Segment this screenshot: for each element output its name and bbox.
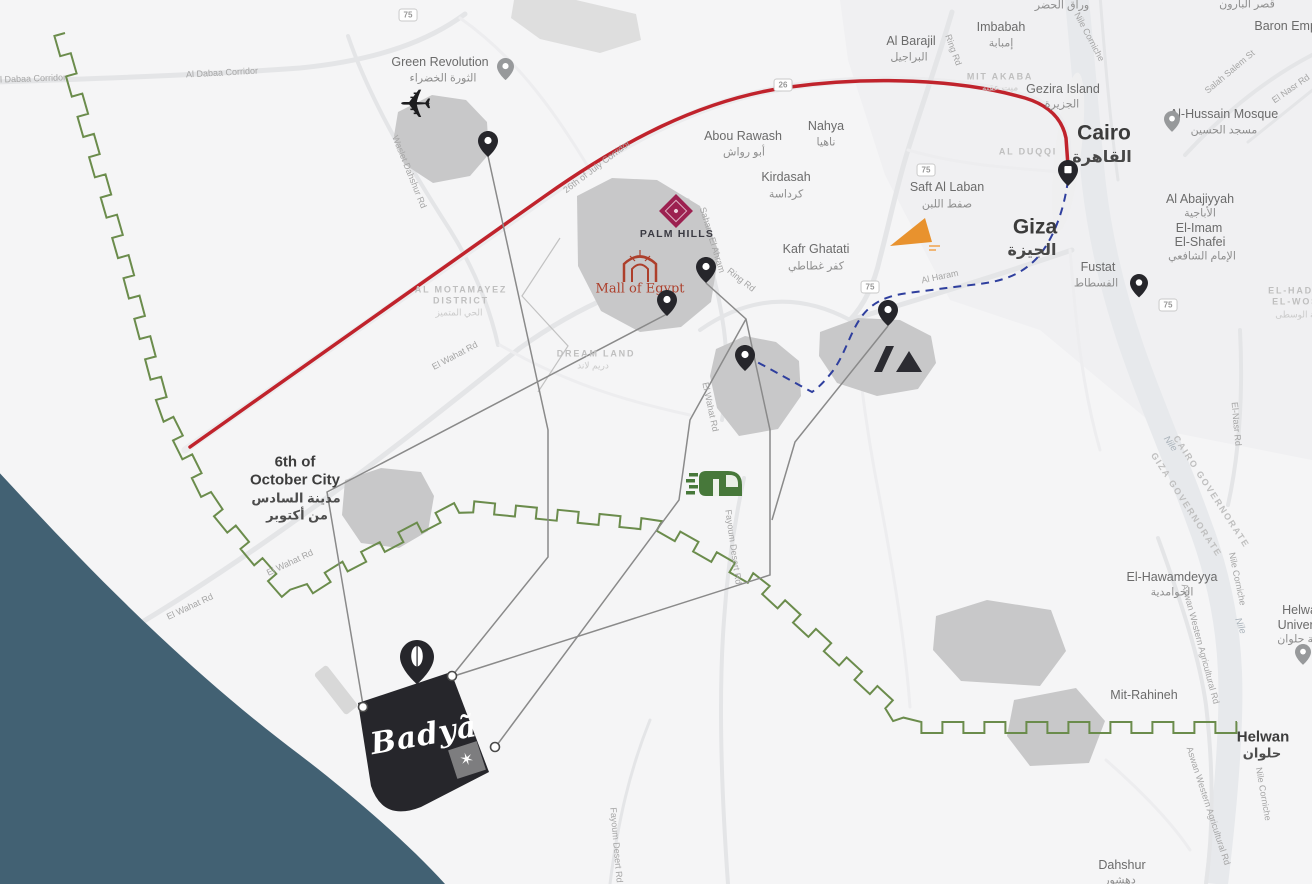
route-badge: 75 [399, 9, 418, 22]
map-label: أبو رواش [723, 148, 765, 159]
map-label: الأباجية [1184, 209, 1216, 220]
map-label: من أكتوبر [266, 509, 328, 522]
map-label: مدينة السادس [251, 492, 340, 505]
map-label: AL MOTAMAYEZ [415, 286, 507, 295]
map-label: صفط اللبن [922, 200, 972, 211]
badya-location-map: ✈ ✶ Al Dabaa CorridorAl Dabaa CorridorGr… [0, 0, 1312, 884]
route-badge: 26 [774, 79, 793, 92]
map-label: الفسطاط [1074, 279, 1118, 290]
map-label: Abou Rawash [704, 130, 782, 143]
route-badge: 75 [861, 281, 880, 294]
map-label: الثورة الخضراء [410, 74, 477, 85]
map-label: Giza [1013, 217, 1057, 238]
map-label: ناهيا [817, 138, 836, 149]
map-label: EL-WOSTA [1272, 298, 1312, 307]
map-label: الحوامدية [1151, 588, 1194, 599]
map-label: الجيزة [1008, 243, 1057, 259]
map-label: كفر غطاطي [788, 262, 844, 273]
map-label: قصر البارون [1219, 0, 1275, 11]
pin-kafr-ghatati[interactable] [878, 300, 898, 331]
map-label: October City [250, 473, 340, 488]
map-label: Gezira Island [1026, 83, 1100, 96]
map-label: البراجيل [890, 53, 927, 64]
map-label: Green Revolution [391, 56, 488, 69]
map-label: Kafr Ghatati [783, 243, 850, 256]
map-label: PALM HILLS [640, 229, 714, 240]
pin-badya[interactable] [400, 640, 434, 689]
map-label: Helwan [1237, 730, 1290, 745]
map-label: DREAM LAND [557, 350, 636, 359]
map-label: حلوان [1243, 747, 1281, 760]
pin-cairo-metro[interactable] [1058, 160, 1078, 191]
map-label: إمبابة [989, 39, 1014, 50]
map-label: القاهرة [1072, 150, 1132, 166]
map-label: مسجد الحسين [1191, 126, 1258, 137]
pin-mall-of-egypt[interactable] [657, 290, 677, 321]
map-label: Baron Empain [1254, 20, 1312, 33]
map-label: Mit-Rahineh [1110, 689, 1177, 702]
map-label: Cairo [1077, 123, 1131, 144]
map-label: Saft Al Laban [910, 181, 984, 194]
map-label: Dahshur [1098, 859, 1145, 872]
map-label: AL DUQQI [999, 148, 1057, 157]
pin-al-hussain-mosque[interactable] [1164, 111, 1180, 137]
pin-green-revolution[interactable] [497, 58, 514, 85]
map-label: Al-Hussain Mosque [1170, 108, 1278, 121]
map-label: Kirdasah [761, 171, 810, 184]
map-label: Al Abajiyyah [1166, 193, 1234, 206]
map-label: الهضبة الوسطى [1275, 311, 1312, 320]
map-label: Fustat [1081, 261, 1116, 274]
route-badge: 75 [917, 164, 936, 177]
map-label: El-Imam [1176, 222, 1223, 235]
pin-fustat[interactable] [1130, 274, 1148, 302]
pin-museum-area[interactable] [735, 345, 755, 376]
map-label: كرداسة [769, 190, 803, 201]
map-label: دهشور [1104, 876, 1136, 884]
map-label: MIT AKABA [967, 73, 1033, 82]
map-label: Nahya [808, 120, 844, 133]
airport-airplane-icon: ✈ [399, 82, 433, 128]
route-badge: 75 [1159, 299, 1178, 312]
pin-helwan-university[interactable] [1295, 644, 1311, 670]
map-label: Imbabah [977, 21, 1026, 34]
map-label: ميت عقبة [982, 84, 1018, 93]
map-label: 6th of [275, 455, 316, 470]
map-label: EL-HADABA [1268, 287, 1312, 296]
map-label: الحي المتميز [435, 309, 482, 318]
pin-sphinx-airport[interactable] [478, 131, 498, 162]
pin-ring-road[interactable] [696, 257, 716, 288]
map-label: الجزيرة [1045, 100, 1079, 111]
map-label: DISTRICT [433, 297, 489, 306]
map-label: El-Hawamdeyya [1126, 571, 1217, 584]
monorail-icon [686, 471, 742, 496]
map-label: Al Barajil [886, 35, 935, 48]
map-label: University [1278, 619, 1312, 632]
map-label: دريم لاند [577, 362, 609, 371]
map-label: El-Shafei [1175, 236, 1226, 249]
map-label: Helwan [1282, 604, 1312, 617]
map-label: الإمام الشافعي [1168, 252, 1236, 263]
